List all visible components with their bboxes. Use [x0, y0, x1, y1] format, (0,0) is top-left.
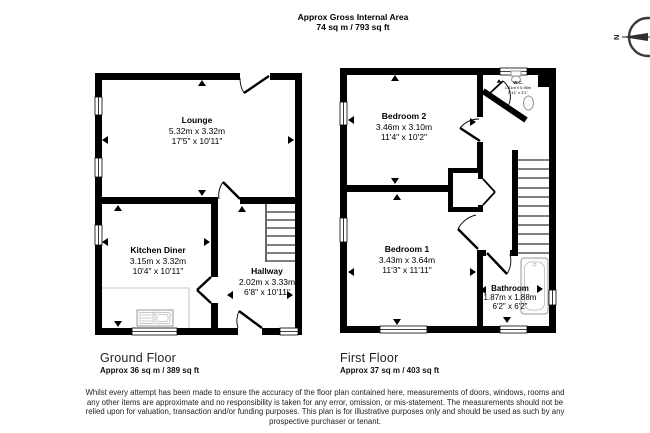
ground-floor-heading: Ground Floor — [100, 351, 176, 365]
room-imperial: 11'4" x 10'2" — [376, 132, 432, 143]
disclaimer-line3: relied upon for valuation, transaction a… — [0, 407, 650, 417]
ground-floor-plan — [88, 66, 310, 342]
room-label-bedroom-1: Bedroom 1 3.43m x 3.64m 11'3" x 11'11" — [379, 244, 435, 276]
first-doors — [458, 81, 511, 274]
room-metric: 2.02m x 3.33m — [239, 277, 295, 288]
first-stairs — [518, 160, 549, 253]
room-label-lounge: Lounge 5.32m x 3.32m 17'5" x 10'11" — [169, 115, 225, 147]
room-imperial: 6'2" x 6'2" — [484, 302, 537, 311]
first-floor-heading: First Floor — [340, 351, 398, 365]
wc-cistern — [511, 71, 521, 76]
compass-icon: N — [606, 14, 650, 64]
room-name: Bathroom — [484, 284, 537, 293]
room-label-hallway: Hallway 2.02m x 3.33m 6'8" x 10'11" — [239, 266, 295, 298]
room-name: Bedroom 1 — [379, 244, 435, 255]
room-name: Hallway — [239, 266, 295, 277]
room-metric: 3.15m x 3.32m — [130, 256, 186, 267]
compass-north-label: N — [612, 35, 621, 40]
disclaimer-line1: Whilst every attempt has been made to en… — [0, 388, 650, 398]
room-metric: 5.32m x 3.32m — [169, 126, 225, 137]
room-label-kitchen-diner: Kitchen Diner 3.15m x 3.32m 10'4" x 10'1… — [130, 245, 186, 277]
room-metric: 1.87m x 1.88m — [484, 293, 537, 302]
room-label-bathroom: Bathroom 1.87m x 1.88m 6'2" x 6'2" — [484, 284, 537, 311]
floorplan-page: Approx Gross Internal Area 74 sq m / 793… — [0, 0, 650, 433]
room-imperial: 11'3" x 11'11" — [379, 265, 435, 276]
room-imperial: 6'8" x 10'11" — [239, 287, 295, 298]
disclaimer-text: Whilst every attempt has been made to en… — [0, 388, 650, 427]
disclaimer-line4: prospective purchaser or tenant. — [0, 417, 650, 427]
room-imperial: 5'11" x 3'1" — [505, 91, 531, 96]
room-imperial: 17'5" x 10'11" — [169, 136, 225, 147]
room-label-wc: W.C. 1.81m x 0.95m 5'11" x 3'1" — [505, 81, 531, 95]
room-metric: 3.43m x 3.64m — [379, 255, 435, 266]
ground-floor-area: Approx 36 sq m / 389 sq ft — [100, 366, 199, 375]
room-name: Lounge — [169, 115, 225, 126]
disclaimer-line2: any other items are approximate and no r… — [0, 398, 650, 408]
room-name: Kitchen Diner — [130, 245, 186, 256]
first-floor-area: Approx 37 sq m / 403 sq ft — [340, 366, 439, 375]
ground-stairs — [266, 204, 295, 262]
room-imperial: 10'4" x 10'11" — [130, 266, 186, 277]
title-line2: 74 sq m / 793 sq ft — [298, 22, 409, 32]
room-name: Bedroom 2 — [376, 111, 432, 122]
wc-basin — [524, 96, 534, 110]
title-line1: Approx Gross Internal Area — [298, 12, 409, 22]
room-label-bedroom-2: Bedroom 2 3.46m x 3.10m 11'4" x 10'2" — [376, 111, 432, 143]
page-title: Approx Gross Internal Area 74 sq m / 793… — [298, 12, 409, 32]
room-metric: 3.46m x 3.10m — [376, 122, 432, 133]
